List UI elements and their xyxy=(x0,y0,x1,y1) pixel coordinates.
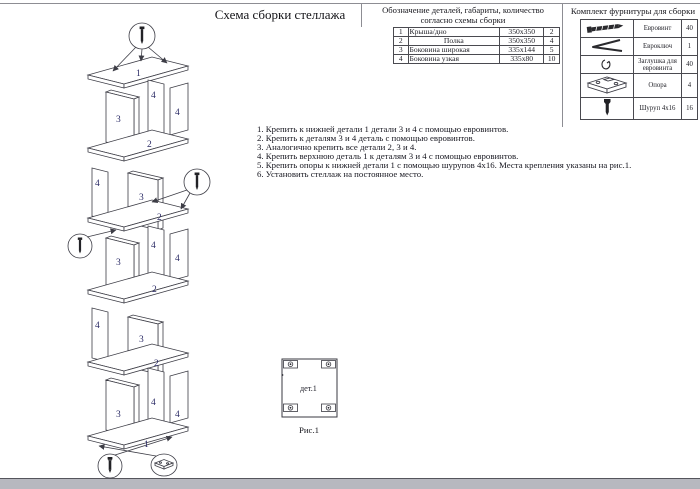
part-label: 4 xyxy=(175,410,180,420)
part-label: 1 xyxy=(144,440,149,450)
part-label: 2 xyxy=(154,359,159,369)
bottom-panel xyxy=(88,418,188,449)
part-label: 4 xyxy=(175,108,180,118)
side-panel-narrow xyxy=(148,368,188,424)
table-row: Шуруп 4х16 16 xyxy=(581,98,698,120)
part-label: 4 xyxy=(151,398,156,408)
hardware-table-title: Комплект фурнитуры для сборки xyxy=(566,6,700,16)
parts-table: 1 Крыша/дно 350х350 2 2 Полка 350х350 4 … xyxy=(393,27,560,64)
hardware-name: Опора xyxy=(634,74,682,98)
part-label: 2 xyxy=(152,285,157,295)
part-number: 4 xyxy=(394,55,409,64)
cap-icon xyxy=(584,56,630,71)
hardware-qty: 40 xyxy=(682,20,698,38)
hardware-icon-cell xyxy=(581,20,634,38)
instruction-item: 6. Установить стеллаж на постоянное мест… xyxy=(257,170,631,179)
euro-screw-icon xyxy=(584,20,630,35)
hardware-table-block: Комплект фурнитуры для сборки Евровинт xyxy=(566,6,700,120)
table-row: Евровинт 40 xyxy=(581,20,698,38)
side-panel-narrow xyxy=(148,80,188,136)
part-label: 3 xyxy=(139,193,144,203)
part-label: 4 xyxy=(175,254,180,264)
part-name: Боковина узкая xyxy=(408,55,500,64)
part-label: 3 xyxy=(116,410,121,420)
shelf-panel xyxy=(88,130,188,161)
side-panel-narrow xyxy=(92,168,108,220)
header-divider-right xyxy=(562,3,563,127)
part-label: 4 xyxy=(151,91,156,101)
assembly-instructions: 1. Крепить к нижней детали 1 детали 3 и … xyxy=(257,125,631,180)
parts-table-title-line2: согласно схемы сборки xyxy=(366,16,560,26)
hardware-name: Евроключ xyxy=(634,38,682,56)
hardware-name: Шуруп 4х16 xyxy=(634,98,682,120)
detail-label: дет.1 xyxy=(300,384,317,393)
figure-caption: Рис.1 xyxy=(284,425,334,435)
hardware-name: Евровинт xyxy=(634,20,682,38)
hardware-icon-cell xyxy=(581,98,634,120)
part-label: 2 xyxy=(157,213,162,223)
hardware-qty: 40 xyxy=(682,56,698,74)
hardware-icon-cell xyxy=(581,74,634,98)
hardware-table: Евровинт 40 Евроключ 1 Заглушка для евро… xyxy=(580,19,698,120)
part-label: 1 xyxy=(136,69,141,79)
hardware-qty: 1 xyxy=(682,38,698,56)
part-label: 2 xyxy=(147,140,152,150)
detail-1-figure: дет.1 xyxy=(278,355,344,423)
part-label: 3 xyxy=(116,258,121,268)
table-row: Евроключ 1 xyxy=(581,38,698,56)
table-row: Опора 4 xyxy=(581,74,698,98)
screw-icon xyxy=(584,98,630,117)
hardware-icon-cell xyxy=(581,56,634,74)
part-label: 4 xyxy=(95,321,100,331)
table-row: 4 Боковина узкая 335х80 10 xyxy=(394,55,560,64)
part-label: 4 xyxy=(95,179,100,189)
part-label: 4 xyxy=(151,241,156,251)
part-size: 335х80 xyxy=(500,55,544,64)
hardware-icon-cell xyxy=(581,38,634,56)
parts-table-block: Обозначение деталей, габариты, количеств… xyxy=(366,6,560,64)
side-panel-narrow xyxy=(92,308,108,362)
hardware-qty: 16 xyxy=(682,98,698,120)
part-label: 3 xyxy=(139,335,144,345)
part-label: 3 xyxy=(116,115,121,125)
assembly-diagram: 1 3 4 4 2 4 3 2 4 3 4 2 4 3 2 3 4 4 1 xyxy=(0,0,240,489)
support-icon xyxy=(584,74,630,95)
hardware-name: Заглушка для евровинта xyxy=(634,56,682,74)
hardware-qty: 4 xyxy=(682,74,698,98)
table-row: Заглушка для евровинта 40 xyxy=(581,56,698,74)
part-qty: 10 xyxy=(544,55,560,64)
hex-key-icon xyxy=(584,38,630,53)
